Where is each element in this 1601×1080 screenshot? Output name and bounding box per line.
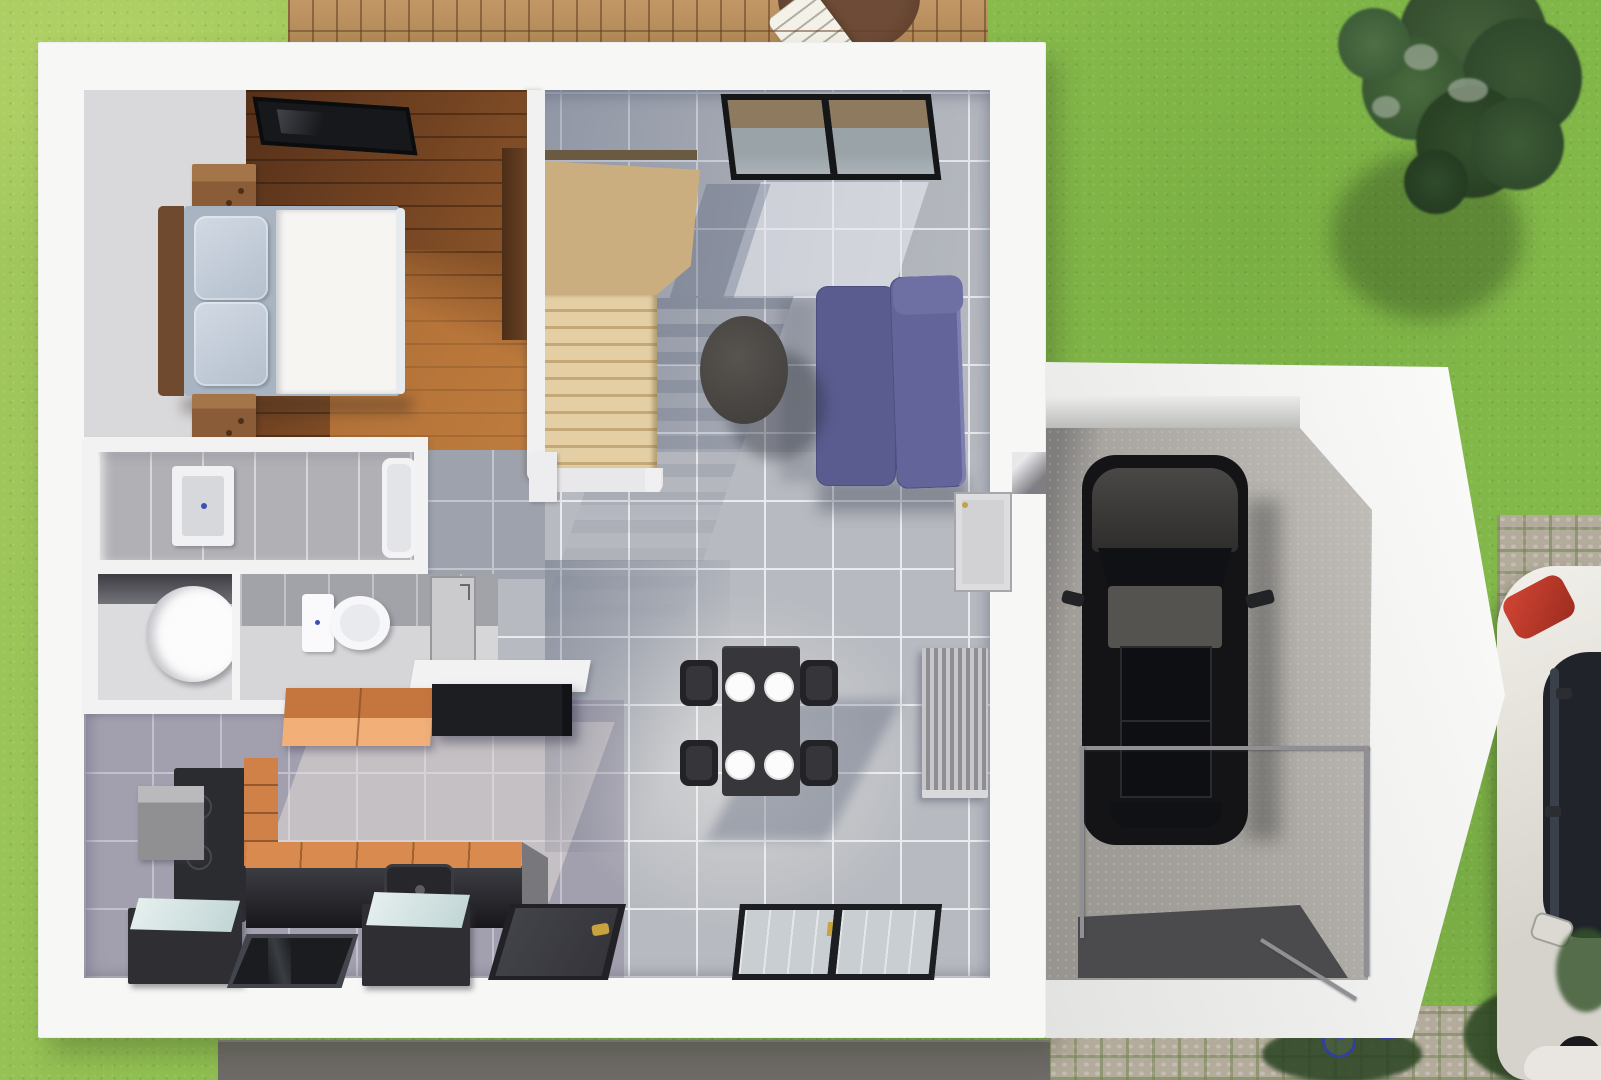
car-rear-window [1110, 802, 1222, 828]
car-door-handle [1545, 806, 1561, 817]
tree-highlight [1448, 78, 1488, 102]
car-door-handle [1556, 688, 1572, 699]
car-hood [1092, 468, 1238, 552]
stair-spine-wall [527, 90, 545, 482]
front-door [494, 908, 622, 976]
glass-railing [1080, 746, 1084, 938]
tree-highlight [1372, 96, 1400, 118]
entry-door [954, 492, 1012, 592]
pillow [194, 216, 268, 300]
bottom-window [732, 904, 942, 980]
toilet-bowl [330, 596, 390, 650]
nightstand [192, 394, 256, 442]
tree-highlight [1404, 44, 1438, 70]
window-pane [828, 100, 934, 174]
bathtub [382, 458, 416, 558]
dining-chair [680, 740, 718, 786]
car-roof [1108, 586, 1222, 648]
shower-tray [172, 466, 234, 546]
partition-wall [232, 570, 240, 700]
plate [764, 672, 794, 702]
gray-path [218, 1040, 1050, 1080]
dining-chair [680, 660, 718, 706]
glass-railing [1080, 746, 1368, 750]
sofa-backrest [892, 275, 963, 315]
car-windshield [1098, 548, 1232, 588]
wall-niche [1012, 452, 1046, 494]
bed-headboard [158, 206, 184, 396]
car-shadow [1246, 500, 1280, 840]
newel-post [645, 468, 661, 492]
car-bumper [1524, 1046, 1601, 1080]
counter-worktop [245, 842, 522, 868]
black-wall-cabinet [432, 684, 572, 736]
bathroom-block [84, 437, 428, 714]
dining-chair [800, 660, 838, 706]
stairwell-edge [545, 150, 697, 160]
straight-stairs [545, 295, 657, 470]
radiator [922, 648, 988, 798]
bathroom-floor [98, 452, 414, 560]
plate [725, 672, 755, 702]
pillow [194, 302, 268, 386]
bed-frame-rail [396, 208, 405, 394]
under-stair-cabinet [529, 452, 557, 502]
tree [1338, 8, 1410, 80]
sliding-window [721, 94, 942, 180]
window-pane [739, 910, 835, 974]
dining-chair [800, 740, 838, 786]
tree [1472, 98, 1564, 190]
tree [1404, 150, 1468, 214]
wardrobe [502, 148, 530, 340]
window-pane [836, 910, 936, 974]
plate [725, 750, 755, 780]
garage-wall-face [1046, 396, 1300, 430]
window-pane [727, 100, 830, 174]
white-car-windows [1543, 652, 1601, 938]
white-duvet [276, 210, 398, 394]
sofa-chaise [816, 286, 896, 486]
glass-railing [1364, 746, 1369, 976]
floor-plan-render [0, 0, 1601, 1080]
orange-wall-cabinet [282, 688, 434, 746]
car-sunroof [1120, 646, 1212, 798]
round-coffee-table [700, 316, 788, 424]
plate [764, 750, 794, 780]
microwave-box [138, 786, 204, 860]
wooden-deck [288, 0, 988, 47]
water-heater [146, 586, 240, 682]
